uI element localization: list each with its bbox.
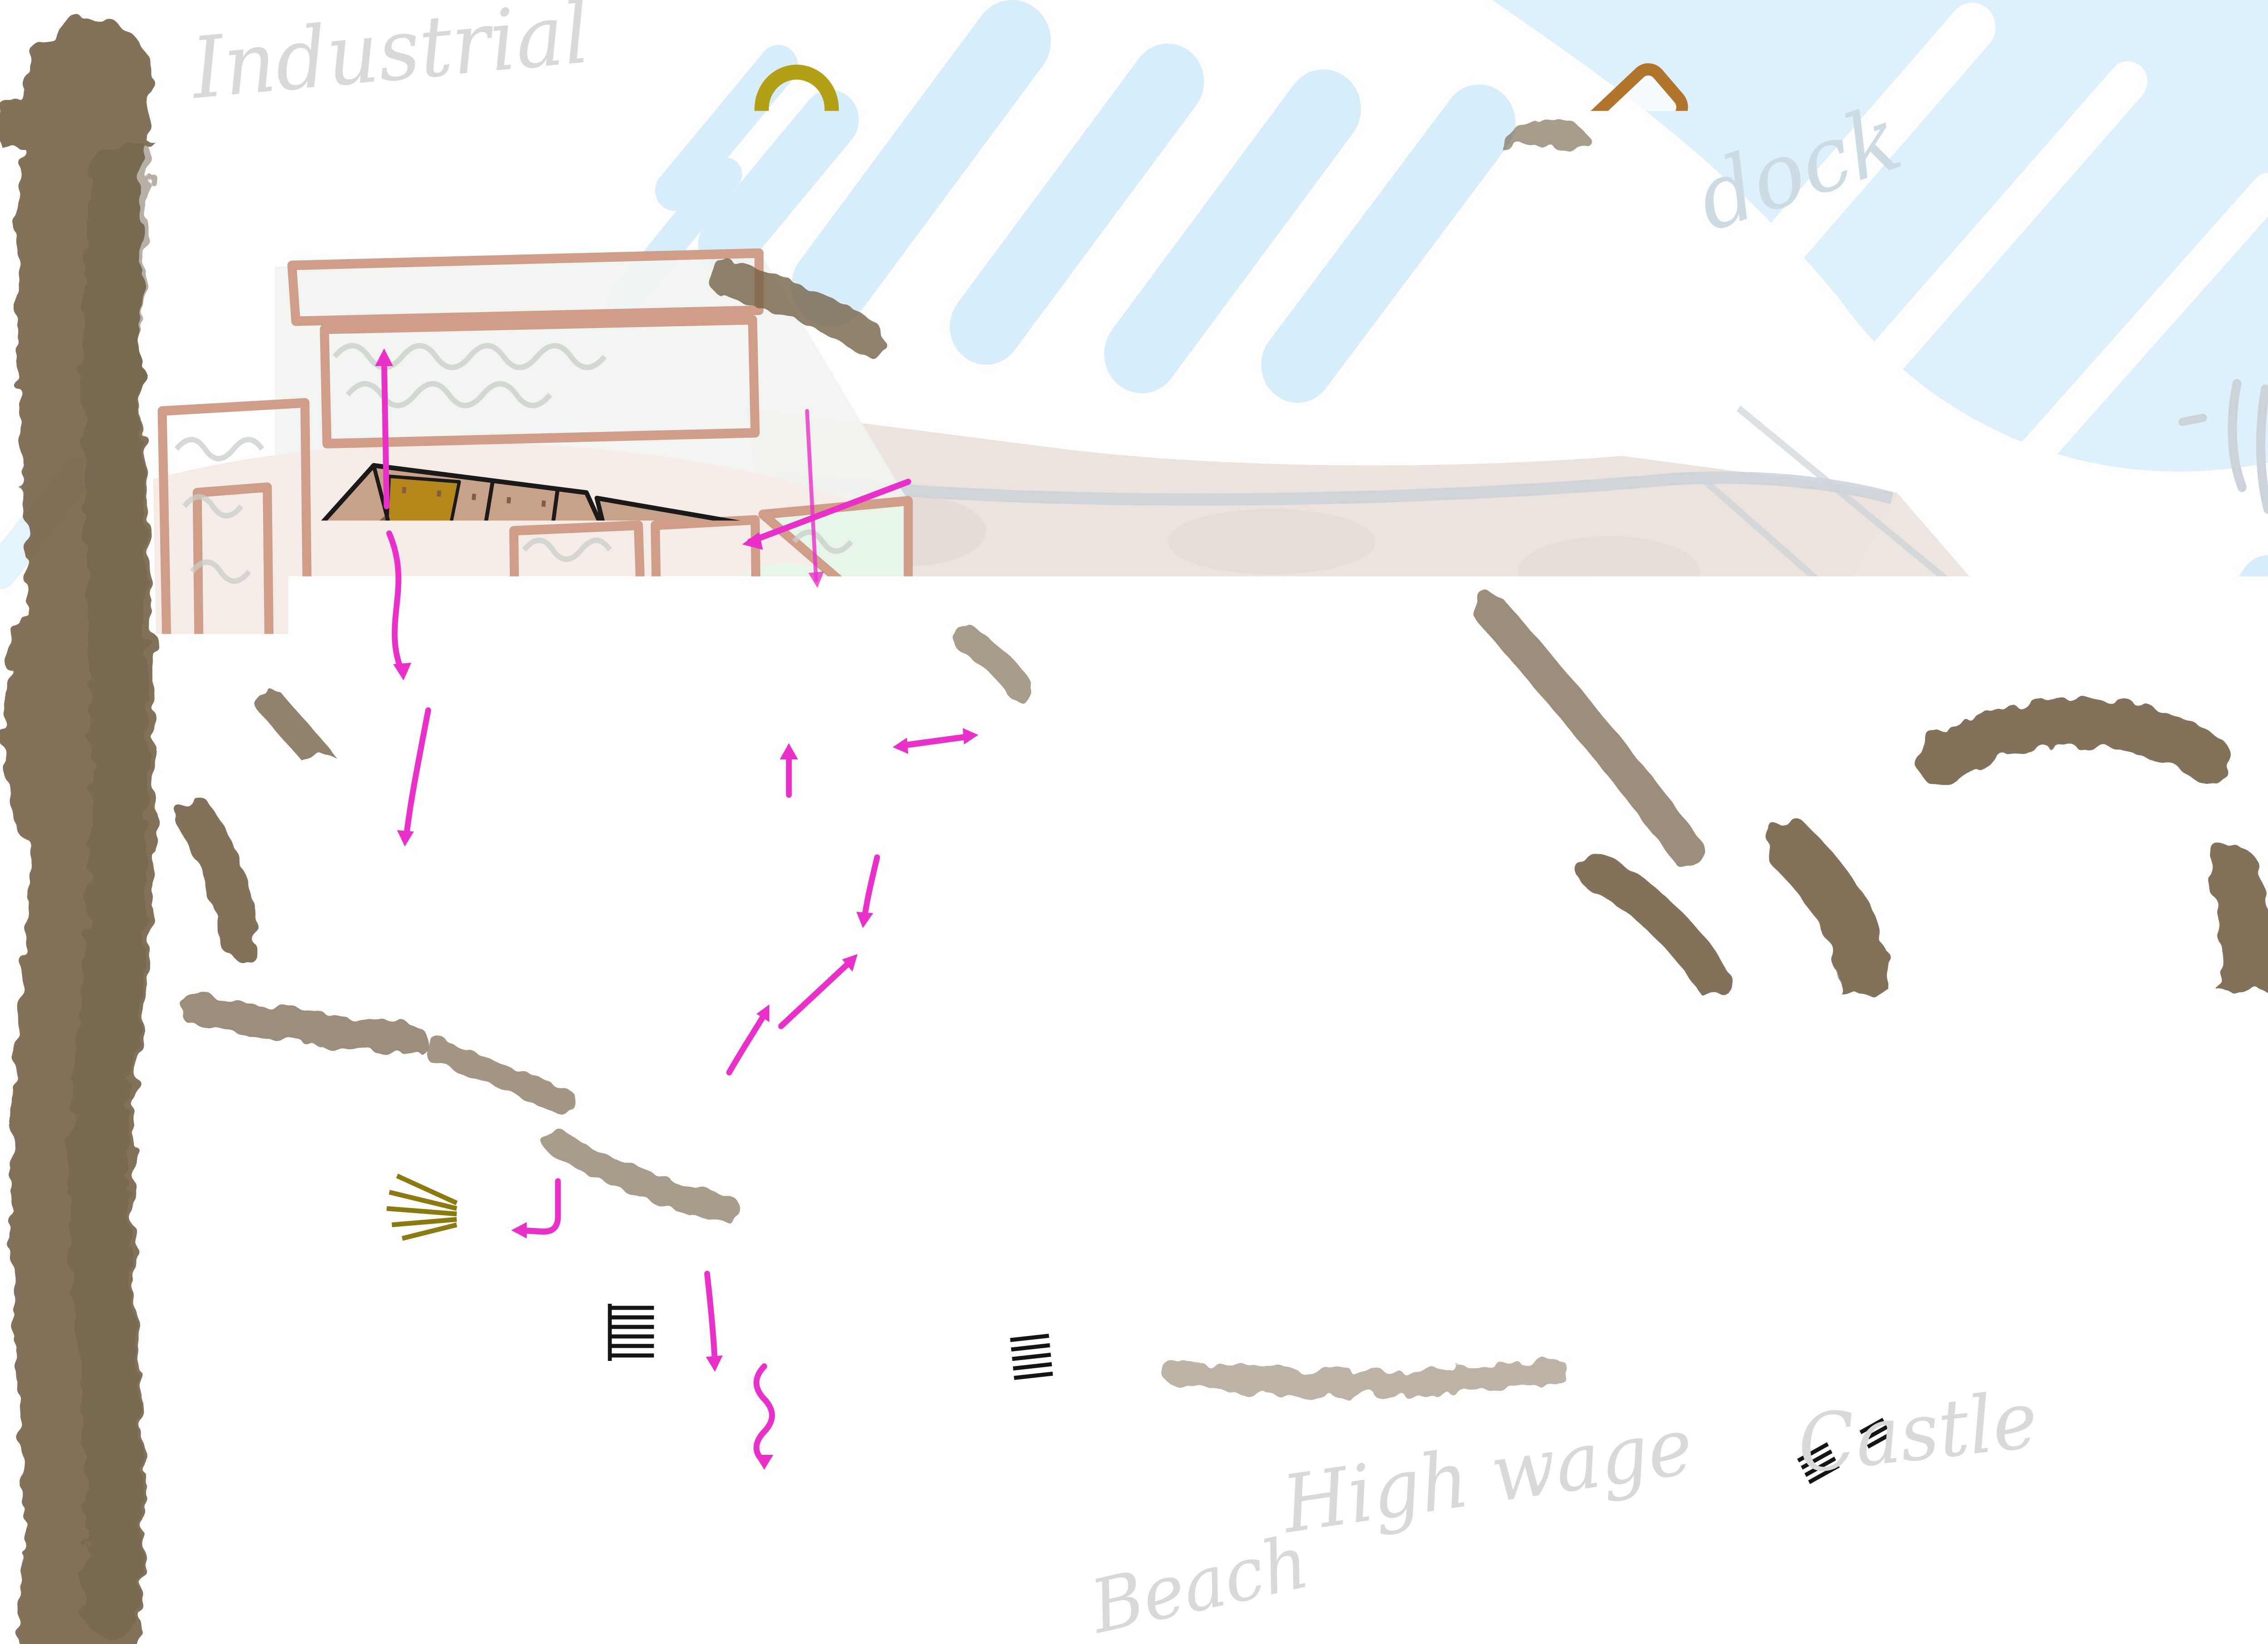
fantasy-city-map: Industrial dock Castle High wage Beach [0,0,2268,1644]
map-canvas: Industrial dock Castle High wage Beach [0,0,2268,1644]
